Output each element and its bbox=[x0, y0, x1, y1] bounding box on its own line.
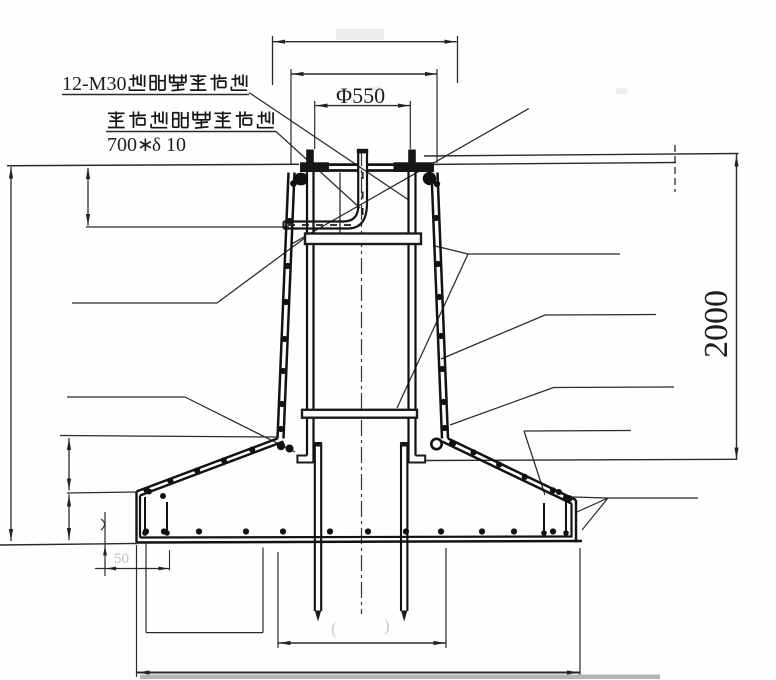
svg-text:700∗: 700∗ bbox=[107, 134, 154, 156]
svg-text:δ: δ bbox=[152, 135, 161, 156]
svg-text:10: 10 bbox=[166, 134, 186, 156]
svg-text:2000: 2000 bbox=[698, 290, 735, 358]
svg-text:Φ550: Φ550 bbox=[336, 83, 385, 108]
svg-text:50: 50 bbox=[114, 551, 129, 567]
svg-text:12-M30: 12-M30 bbox=[62, 73, 126, 95]
svg-text:(: ( bbox=[331, 619, 337, 638]
svg-text:): ) bbox=[384, 616, 390, 635]
